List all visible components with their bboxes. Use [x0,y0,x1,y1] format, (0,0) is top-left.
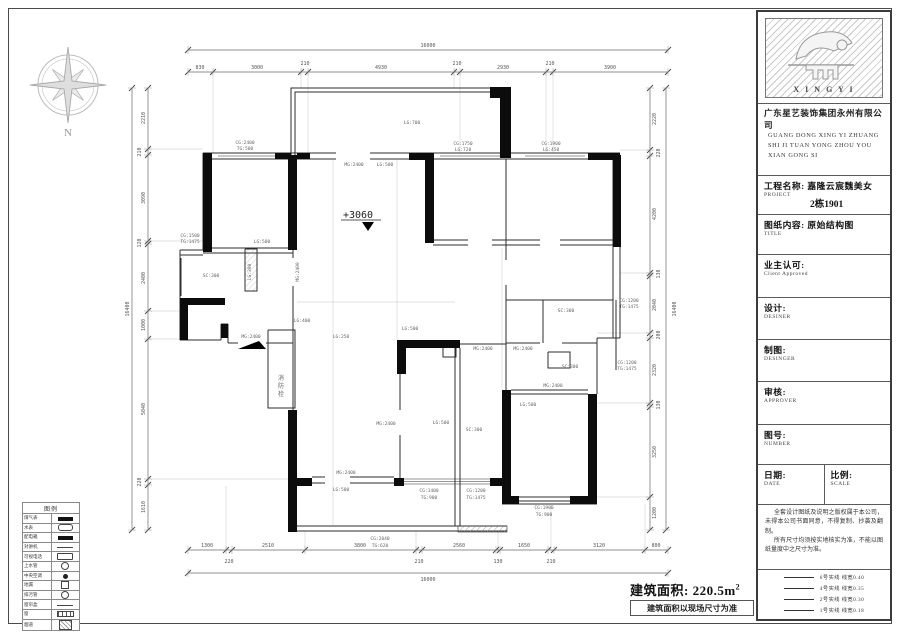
client-approved-row: 业主认可: Client Approved [758,255,890,298]
legend-row: 中央空调 [23,571,80,581]
line-symbol-icon [57,605,73,606]
legend-symbol-cell [51,561,80,571]
legend-row: 煤气表 [23,514,80,524]
dim-label: 1300 [201,543,213,549]
legend-row: 烟道 [23,619,80,630]
legend-label: 对讲机 [23,542,52,552]
project-number: 2栋1901 [810,196,843,210]
plan-annotation: LG:500 [377,162,394,168]
sheet-title-section: 图纸内容: 原始结构图 TITLE [758,215,890,255]
client-approved-label: 业主认可: [764,258,884,271]
plan-annotation: LG:300 [247,263,253,280]
sheet-title: 图纸内容: 原始结构图 [764,218,884,231]
legend-symbol-cell [51,609,80,619]
plan-annotation: CG:1500 [180,233,200,239]
plan-annotation: LG:700 [404,120,421,126]
compass-n-label: N [64,127,72,139]
line-sample [784,610,814,611]
legend-symbol-cell [51,533,80,543]
legend-row: 排污管 [23,590,80,600]
date-label: 日期: [764,468,818,481]
building-area: 建筑面积: 220.5m2 建筑面积以现场尺寸为准 [630,580,754,616]
dim-label: 210 [546,559,555,565]
dim-label: 2320 [652,364,658,376]
drawing-number-sub: NUMBER [764,441,884,447]
legend-row: 可视电话 [23,552,80,562]
hatch-symbol-icon [59,620,72,630]
line-type-label: 4号实线 线宽0.35 [820,585,864,592]
dim-label: 3000 [251,65,263,71]
plan-annotation: SC:300 [558,308,575,314]
dim-group-bottom-seg: 130025103800256016503120800220210130210 [185,543,671,565]
plan-annotation: CG:1900 [534,505,554,511]
plan-annotation: TG:1475 [617,366,637,372]
dim-label: 16400 [125,301,131,316]
building-area-value: 建筑面积: 220.5m2 [630,580,754,599]
dim-label: 210 [300,61,309,67]
dot-symbol-icon [63,574,68,579]
dim-label: 16000 [420,577,435,583]
plan-annotation: LG:500 [433,420,450,426]
bar-symbol-icon [58,536,73,540]
project-name: 工程名称: 嘉隆云宸魏美女 [764,179,884,192]
dim-label: 3900 [604,65,616,71]
drafter-sub: DESINGER [764,356,884,362]
dim-label: 130 [656,269,662,278]
dim-label: 2400 [141,272,147,284]
copyright-notes: 全套设计图纸及说明之版权属于本公司，未得本公司书面同意，不得复制、抄袭及翻制。 … [758,505,890,570]
legend-label: 窗 [23,609,52,619]
drawing-number-label: 图号: [764,428,884,441]
square-symbol-icon [61,581,69,589]
dim-label: 130 [493,559,502,565]
title-block: X I N G Y I 广东星艺装饰集团永州有限公司 GUANG DONG XI… [756,10,892,621]
plan-annotation: MG:2400 [241,334,261,340]
dim-label: 1000 [141,319,147,331]
line-type-label: 2号实线 线宽0.30 [820,596,864,603]
dim-group-top-seg: 8303000210493021029302103900 [185,61,671,76]
building-area-note: 建筑面积以现场尺寸为准 [630,600,754,616]
plan-annotation: SC:300 [466,427,483,433]
legend-row: 配电箱 [23,533,80,543]
plan-annotation: CG:1400 [419,488,439,494]
legend-row: 上水管 [23,561,80,571]
legend-label: 窗帘盒 [23,600,52,610]
plan-annotation: CG:1200 [619,298,639,304]
legend-symbol-cell [51,590,80,600]
dim-group-left-seg: 221021030901202400100050402201610 [137,85,152,533]
plan-annotation: TG:900 [536,512,553,518]
legend-symbol-cell [51,600,80,610]
line-sample [784,599,814,600]
legend-label: 上水管 [23,561,52,571]
legend-row: 对讲机 [23,542,80,552]
entry-door-symbol [238,341,266,349]
legend-symbol-cell [51,552,80,562]
plan-annotation: LG:500 [333,487,350,493]
dim-label: 5040 [141,403,147,415]
dim-label: 3800 [354,543,366,549]
dim-label: 4930 [375,65,387,71]
legend-label: 配电箱 [23,533,52,543]
line-sample [784,588,814,589]
line-sample [784,577,814,578]
dim-label: 130 [656,400,662,409]
plan-annotation: MG:2400 [473,346,493,352]
sheet-title-sub: TITLE [764,231,884,237]
line-type-row: 1号实线 线宽0.18 [764,607,884,614]
plan-annotation: MG:2400 [543,383,563,389]
plan-annotation: TG:900 [421,495,438,501]
client-approved-sub: Client Approved [764,271,884,277]
legend-symbol-cell [51,542,80,552]
plan-annotation: LG:500 [520,402,537,408]
date-cell: 日期: DATE [758,465,825,504]
dim-group-bottom-total: 16000 [185,569,671,583]
plan-annotation: MG:2400 [295,262,301,282]
plan-annotation: CG:2040 [370,536,390,542]
drawing-sheet: N [0,0,900,632]
dim-label: 3120 [593,543,605,549]
designer-row: 设计: DESINER [758,298,890,340]
legend-label: 煤气表 [23,514,52,524]
plan-annotation: TG:1475 [180,239,200,245]
level-marker: +3060 [341,210,381,231]
legend-row: 水表 [23,523,80,533]
bar-symbol-icon [58,517,73,521]
dim-label: 2930 [497,65,509,71]
scale-label: 比例: [831,468,885,481]
approver-row: 审核: APPROVER [758,382,890,425]
logo-text: X I N G Y I [766,85,882,94]
plan-annotation: 栓 [278,390,284,398]
dim-label: 210 [545,61,554,67]
dim-label: 210 [137,147,143,156]
plan-annotation: MG:2400 [513,346,533,352]
plan-annotation: SC:300 [203,273,220,279]
company-name-en-3: XIAN GONG SI [764,151,884,161]
company-section: 广东星艺装饰集团永州有限公司 GUANG DONG XING YI ZHUANG… [758,104,890,176]
dim-label: 800 [651,543,660,549]
dim-label: 2040 [652,299,658,311]
date-scale-row: 日期: DATE 比例: SCALE [758,465,890,505]
dim-label: 16000 [420,43,435,49]
compass: N [30,47,106,139]
legend-label: 可视电话 [23,552,52,562]
window-symbol-icon [57,611,74,617]
thin-walls [180,88,620,531]
hatched-window [458,526,507,532]
plan-annotation: TG:1475 [466,495,486,501]
dim-label: 220 [656,148,662,157]
plan-labels: CG:2400TG:500LG:700MG:2400LG:500CG:1750L… [180,120,639,549]
dim-group-right-seg: 222022042001302040200232013032501200 [646,85,662,533]
drafter-label: 制图: [764,343,884,356]
approver-sub: APPROVER [764,398,884,404]
scale-cell: 比例: SCALE [825,465,891,504]
drafter-row: 制图: DESINGER [758,340,890,382]
dim-label: 4200 [652,208,658,220]
note-line-1: 全套设计图纸及说明之版权属于本公司，未得本公司书面同意，不得复制、抄袭及翻制。 [765,509,883,537]
plan-annotation: CG:1200 [617,360,637,366]
dim-label: 3250 [652,446,658,458]
company-logo: X I N G Y I [765,18,883,98]
dim-label: 210 [452,61,461,67]
line-type-row: 4号实线 线宽0.35 [764,585,884,592]
dim-label: 830 [195,65,204,71]
logo-section: X I N G Y I [758,12,890,104]
legend-title: 图例 [23,503,80,514]
plan-annotation: TG:500 [237,146,254,152]
plan-annotation: MG:2400 [344,162,364,168]
dim-label: 1200 [652,507,658,519]
legend-label: 水表 [23,523,52,533]
dim-label: 1610 [141,501,147,513]
company-name-cn: 广东星艺装饰集团永州有限公司 [764,107,884,131]
plan-annotation: CG:1200 [466,488,486,494]
date-sub: DATE [764,481,818,487]
dim-label: 1650 [518,543,530,549]
designer-label: 设计: [764,301,884,314]
plan-annotation: 防 [278,382,284,390]
plan-annotation: CG:1900 [541,141,561,147]
dim-group-left-total: 16400 [125,85,136,533]
legend-label: 排污管 [23,590,52,600]
dim-label: 2560 [453,543,465,549]
project-section: 工程名称: 嘉隆云宸魏美女 PROJECT 2栋1901 [758,176,890,215]
plan-annotation: SC:300 [562,364,579,370]
legend-label: 地漏 [23,581,52,591]
legend-symbol-cell [51,581,80,591]
plan-annotation: LG:720 [455,147,472,153]
legend-label: 中央空调 [23,571,52,581]
line-type-row: 2号实线 线宽0.30 [764,596,884,603]
plan-annotation: LG:450 [543,147,560,153]
legend-symbol-cell [51,514,80,524]
legend-symbol-cell [51,571,80,581]
plan-annotation: TG:620 [372,543,389,549]
plan-annotation: MG:2400 [336,470,356,476]
line-type-legend: 6号实线 线宽0.40 4号实线 线宽0.35 2号实线 线宽0.30 1号实线… [758,570,890,618]
company-name-en-2: SHI JI TUAN YONG ZHOU YOU [764,141,884,151]
designer-sub: DESINER [764,314,884,320]
circle-symbol-icon [61,591,69,599]
plan-annotation: CG:1750 [453,141,473,147]
line-type-row: 6号实线 线宽0.40 [764,574,884,581]
dim-label: 220 [137,477,143,486]
dim-label: 210 [414,559,423,565]
svg-text:+3060: +3060 [343,210,373,221]
dim-label: 2210 [141,112,147,124]
line-type-label: 6号实线 线宽0.40 [820,574,864,581]
company-name-en-1: GUANG DONG XING YI ZHUANG [764,131,884,141]
area-superscript: 2 [736,583,741,592]
legend-table: 图例 煤气表水表配电箱对讲机可视电话上水管中央空调地漏排污管窗帘盒窗烟道 [22,502,80,631]
note-line-2: 所有尺寸均须按实地核实为准，不能以图纸量度中之尺寸为准。 [765,537,883,556]
plan-annotation: LG:400 [294,318,311,324]
dim-label: 120 [137,238,143,247]
plan-annotation: TG:1475 [619,304,639,310]
dim-label: 2220 [652,113,658,125]
line-symbol-icon [57,547,73,548]
legend-label: 烟道 [23,619,52,630]
plan-annotation: LG:500 [402,326,419,332]
plan-annotation: CG:2400 [235,140,255,146]
scale-sub: SCALE [831,481,885,487]
dim-label: 200 [656,330,662,339]
dim-label: 220 [224,559,233,565]
drawing-number-row: 图号: NUMBER [758,425,890,465]
legend-row: 窗 [23,609,80,619]
plan-annotation: 消 [278,374,284,382]
oval-symbol-icon [58,524,73,531]
oval2-symbol-icon [57,553,73,560]
plan-annotation: MG:2400 [376,421,396,427]
dim-label: 16400 [672,301,678,316]
window-lines [218,156,585,484]
plan-annotation: LG:250 [333,334,350,340]
legend-row: 窗帘盒 [23,600,80,610]
dim-label: 3090 [141,192,147,204]
circle-symbol-icon [61,562,69,570]
dim-group-top-total: 16000 [185,43,671,54]
legend-symbol-cell [51,523,80,533]
plan-annotation: LG:500 [254,239,271,245]
legend-row: 地漏 [23,581,80,591]
legend-symbol-cell [51,619,80,630]
dim-label: 2510 [262,543,274,549]
dim-group-right-total: 16400 [662,85,678,533]
line-type-label: 1号实线 线宽0.18 [820,607,864,614]
approver-label: 审核: [764,385,884,398]
